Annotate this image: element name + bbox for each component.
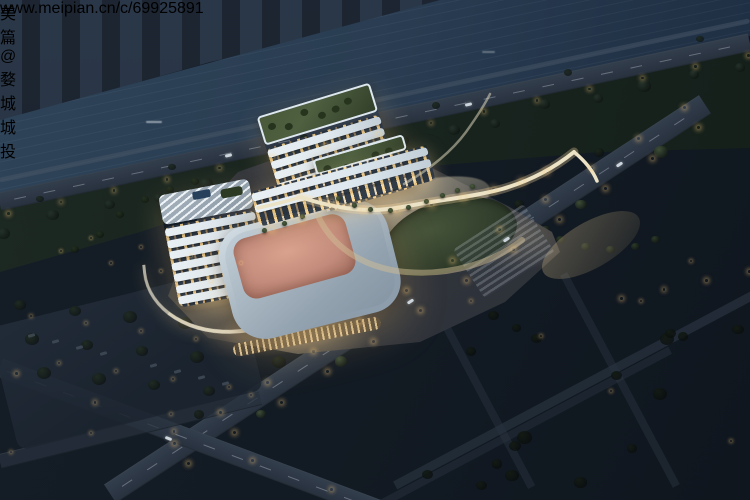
car — [225, 153, 232, 157]
vehicles — [0, 0, 750, 500]
parked-car — [150, 363, 158, 368]
parked-car — [76, 345, 84, 350]
car — [407, 298, 415, 304]
parked-car — [52, 339, 60, 344]
car — [616, 161, 624, 167]
watermark-brand: 美篇 @婺城城投 — [0, 0, 16, 162]
car — [503, 236, 511, 242]
car — [165, 436, 173, 441]
watermark-url: www.meipian.cn/c/69925891 — [0, 0, 204, 18]
parked-car — [222, 381, 230, 386]
parked-car — [28, 333, 36, 338]
parked-car — [100, 351, 108, 356]
car — [465, 102, 472, 106]
night-aerial-rendering: 美篇 @婺城城投 www.meipian.cn/c/69925891 — [0, 0, 750, 500]
parked-car — [174, 369, 182, 374]
parked-car — [198, 375, 206, 380]
